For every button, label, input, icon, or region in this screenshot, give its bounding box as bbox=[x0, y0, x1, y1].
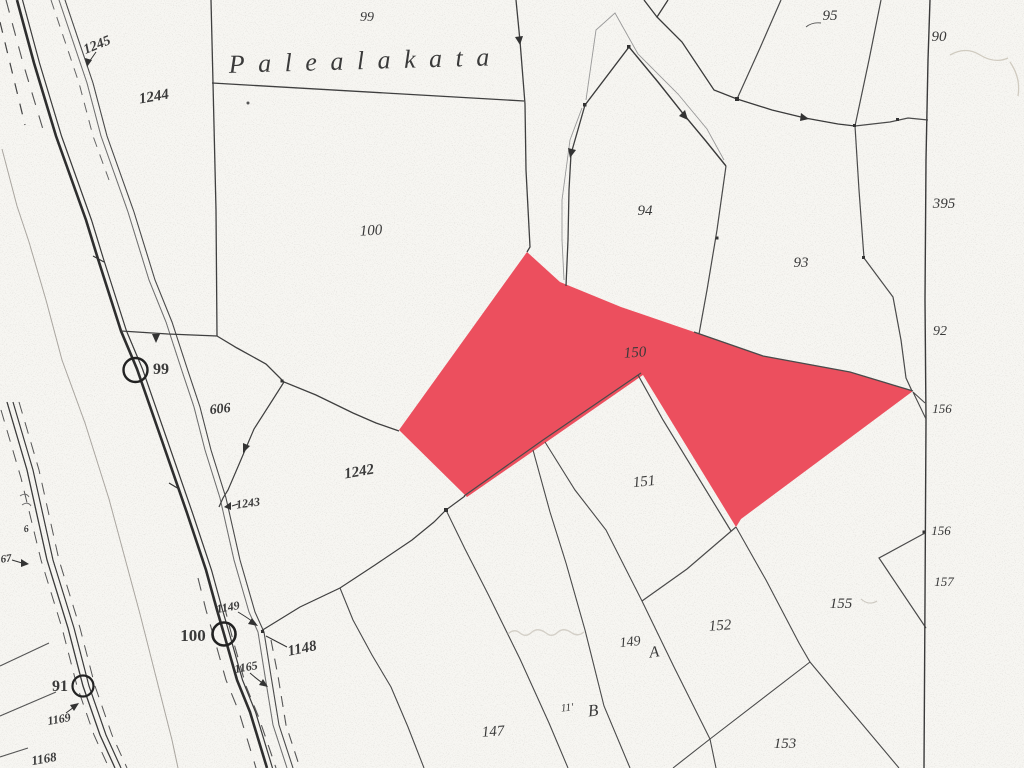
svg-text:67: 67 bbox=[0, 552, 13, 565]
svg-text:94: 94 bbox=[638, 203, 654, 219]
svg-text:92: 92 bbox=[933, 324, 947, 339]
svg-text:156: 156 bbox=[932, 401, 952, 416]
svg-text:100: 100 bbox=[180, 626, 206, 645]
svg-text:157: 157 bbox=[934, 574, 954, 589]
svg-text:147: 147 bbox=[481, 723, 506, 741]
svg-text:150: 150 bbox=[623, 344, 647, 362]
svg-text:606: 606 bbox=[209, 401, 231, 418]
svg-text:395: 395 bbox=[932, 196, 956, 212]
svg-text:11′: 11′ bbox=[560, 701, 574, 714]
svg-text:91: 91 bbox=[52, 678, 68, 695]
svg-text:156: 156 bbox=[931, 523, 951, 538]
svg-text:151: 151 bbox=[632, 473, 656, 491]
svg-text:153: 153 bbox=[774, 736, 797, 752]
svg-text:152: 152 bbox=[708, 617, 732, 635]
svg-text:90: 90 bbox=[932, 29, 948, 45]
svg-text:99: 99 bbox=[360, 10, 374, 25]
svg-text:155: 155 bbox=[830, 596, 853, 612]
svg-text:100: 100 bbox=[359, 222, 383, 239]
svg-text:93: 93 bbox=[794, 255, 809, 271]
svg-text:149: 149 bbox=[619, 634, 641, 651]
svg-text:99: 99 bbox=[153, 361, 169, 378]
svg-text:95: 95 bbox=[823, 8, 839, 24]
